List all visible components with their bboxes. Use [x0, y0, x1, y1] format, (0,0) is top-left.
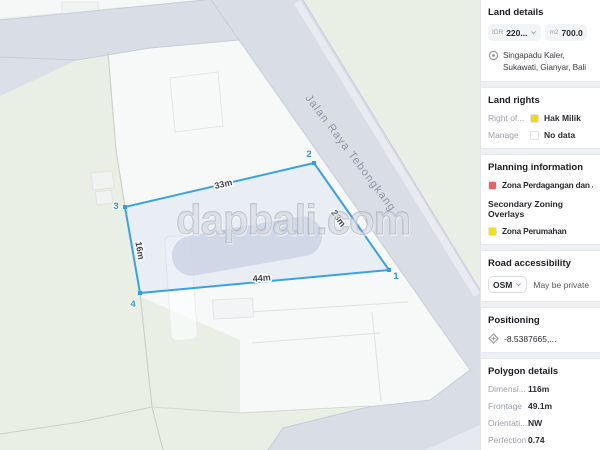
section-divider — [481, 81, 600, 88]
road-source-value: OSM — [493, 280, 512, 290]
vertex-label-4: 4 — [130, 299, 136, 310]
road-access-note: May be private — [533, 280, 589, 290]
polygon-details-section: Polygon details Dimensi... 116m Frontage… — [481, 359, 600, 450]
section-divider — [481, 244, 600, 251]
coordinates-value: -8.5387665,... — [504, 334, 556, 344]
right-of-label: Right of... — [488, 113, 530, 123]
chevron-down-icon — [515, 281, 522, 288]
overlays-subtitle: Secondary Zoning Overlays — [488, 199, 593, 219]
edge-label-bottom: 44m — [252, 272, 271, 284]
dimension-label: Dimensi... — [488, 384, 528, 394]
vertex-label-2: 2 — [306, 149, 311, 160]
primary-zone-row: Zona Perdagangan dan Jasa — [488, 180, 593, 190]
manage-value: No data — [544, 130, 575, 140]
frontage-label: Frontage — [488, 401, 528, 411]
price-value: 220... — [506, 28, 527, 38]
area-chip[interactable]: m2 700.0 — [545, 24, 586, 41]
overlay-zone-swatch — [488, 227, 497, 236]
perfection-value: 0.74 — [528, 435, 545, 445]
right-of-value: Hak Milik — [544, 113, 581, 123]
area-value: 700.0 — [562, 28, 583, 38]
dimension-row: Dimensi... 116m — [488, 384, 593, 394]
positioning-section: Positioning -8.5387665,... — [481, 308, 600, 352]
crosshair-icon — [488, 333, 499, 344]
hak-milik-swatch — [530, 114, 539, 123]
polygon-details-title: Polygon details — [488, 366, 593, 377]
land-details-app: Jalan Raya Tebongkang 33m 23m 44m 16m 1 … — [0, 0, 600, 450]
orientation-row: Orientati... NW — [488, 418, 593, 428]
perfection-label: Perfection — [488, 435, 528, 445]
section-divider — [481, 352, 600, 359]
road-accessibility-title: Road accessibility — [488, 258, 593, 269]
area-unit-label: m2 — [549, 29, 558, 36]
price-unit-label: IDR — [492, 29, 503, 36]
chevron-down-icon — [530, 29, 537, 36]
dimension-value: 116m — [528, 384, 549, 394]
orientation-value: NW — [528, 418, 542, 428]
land-details-section: Land details IDR 220... m2 700.0 Singapa — [481, 0, 600, 81]
primary-zone-swatch — [488, 181, 497, 190]
planning-section: Planning information Zona Perdagangan da… — [481, 155, 600, 244]
location-pin-icon — [488, 50, 499, 61]
frontage-value: 49.1m — [528, 401, 552, 411]
manage-row: Manage No data — [488, 130, 593, 140]
vertex-label-1: 1 — [393, 271, 399, 282]
land-rights-section: Land rights Right of... Hak Milik Manage… — [481, 88, 600, 148]
location-text: Singapadu Kaler, Sukawati, Gianyar, Bali — [503, 50, 593, 73]
price-dropdown[interactable]: IDR 220... — [488, 24, 541, 41]
positioning-title: Positioning — [488, 315, 593, 326]
overlay-zone-row: Zona Perumahan — [488, 226, 593, 236]
right-of-row: Right of... Hak Milik — [488, 113, 593, 123]
orientation-label: Orientati... — [488, 418, 528, 428]
land-details-title: Land details — [488, 7, 593, 18]
manage-label: Manage — [488, 130, 530, 140]
perfection-row: Perfection 0.74 — [488, 435, 593, 445]
vertex-label-3: 3 — [113, 201, 118, 212]
map-canvas[interactable]: Jalan Raya Tebongkang 33m 23m 44m 16m 1 … — [0, 0, 480, 450]
primary-zone-label: Zona Perdagangan dan Jasa — [502, 180, 593, 190]
planning-title: Planning information — [488, 162, 593, 173]
section-divider — [481, 301, 600, 308]
details-sidebar: Land details IDR 220... m2 700.0 Singapa — [480, 0, 600, 450]
land-rights-title: Land rights — [488, 95, 593, 106]
overlay-zone-label: Zona Perumahan — [502, 226, 567, 236]
road-source-select[interactable]: OSM — [488, 276, 527, 293]
road-accessibility-section: Road accessibility OSM May be private — [481, 251, 600, 301]
section-divider — [481, 148, 600, 155]
manage-swatch — [530, 131, 539, 140]
frontage-row: Frontage 49.1m — [488, 401, 593, 411]
